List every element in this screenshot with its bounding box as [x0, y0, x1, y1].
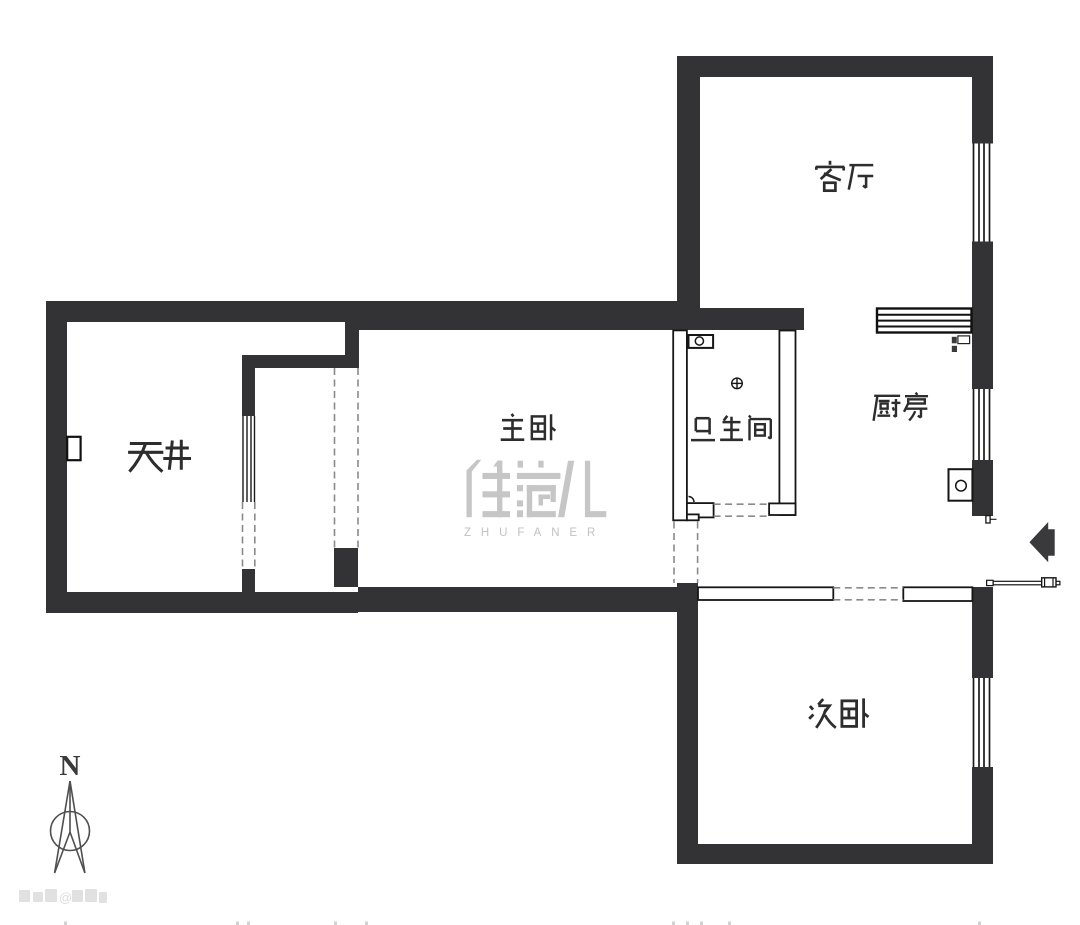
svg-text:N: N [60, 750, 81, 782]
svg-text:@: @ [59, 890, 72, 905]
svg-text:ZHUFANER: ZHUFANER [464, 527, 605, 539]
